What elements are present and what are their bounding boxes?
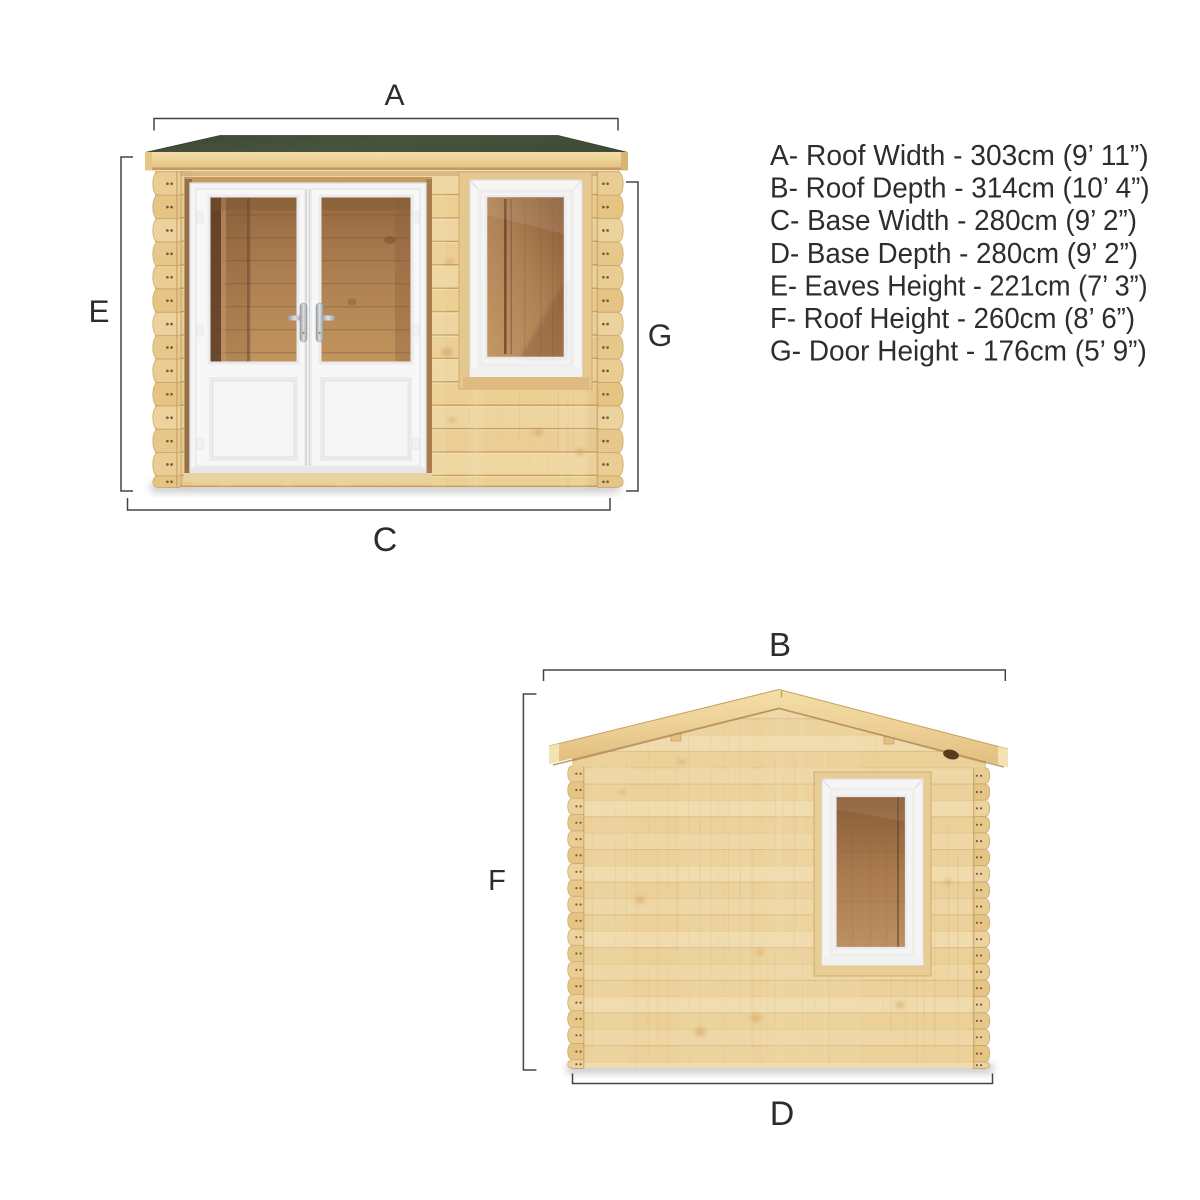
svg-text:F- Roof Height - 260cm (8’ 6”): F- Roof Height - 260cm (8’ 6”) [770,303,1135,335]
svg-text:C: C [373,521,398,559]
svg-text:A- Roof Width - 303cm (9’ 11”): A- Roof Width - 303cm (9’ 11”) [770,140,1149,172]
svg-text:G: G [648,317,673,353]
svg-text:B- Roof Depth - 314cm (10’ 4”): B- Roof Depth - 314cm (10’ 4”) [770,173,1150,205]
svg-text:E: E [88,293,109,329]
svg-text:D: D [770,1095,795,1133]
svg-text:C- Base Width - 280cm (9’ 2”): C- Base Width - 280cm (9’ 2”) [770,205,1137,237]
svg-text:B: B [769,626,791,663]
svg-text:D- Base Depth - 280cm (9’ 2”): D- Base Depth - 280cm (9’ 2”) [770,238,1138,270]
svg-text:G- Door Height - 176cm (5’ 9”): G- Door Height - 176cm (5’ 9”) [770,336,1147,368]
svg-text:E- Eaves Height - 221cm (7’ 3”: E- Eaves Height - 221cm (7’ 3”) [770,270,1148,302]
svg-text:F: F [488,865,506,897]
svg-text:A: A [384,79,404,112]
